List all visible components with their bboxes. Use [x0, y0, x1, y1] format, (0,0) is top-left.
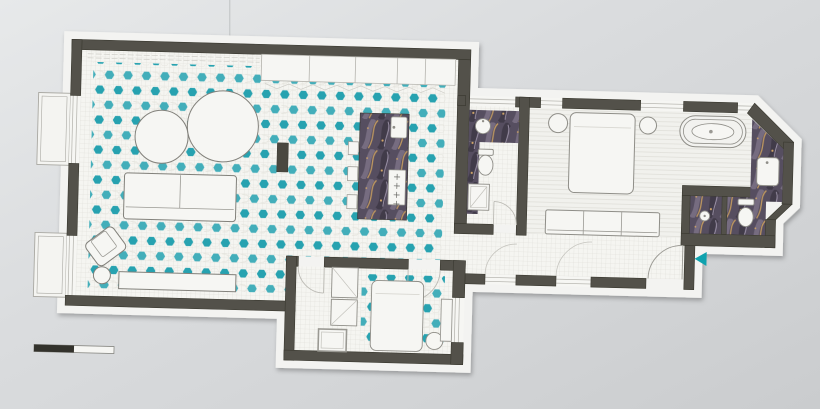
- window-second-bedroom: [451, 297, 464, 342]
- washing-machine: [468, 184, 490, 211]
- wall-east: [782, 142, 794, 204]
- wall-entrance-east: [684, 245, 695, 289]
- kitchen-sink: [391, 117, 408, 138]
- console-bench: [119, 272, 236, 292]
- scale-bar-dark-half: [34, 344, 74, 352]
- side-table: [93, 267, 110, 284]
- bar-stool: [347, 167, 357, 181]
- shower-tray: [318, 329, 347, 352]
- toilet: [737, 199, 754, 227]
- scale-bar: [34, 344, 114, 353]
- sofa: [123, 173, 236, 222]
- media-unit: [277, 143, 289, 172]
- plan-rotated-group: [32, 39, 796, 374]
- wall-guest-bath-south: [454, 223, 493, 234]
- wall-wc-divider: [721, 196, 727, 234]
- window-wing-top-2: [540, 98, 562, 109]
- window-shelf: [440, 299, 452, 341]
- photo-of-floor-plan: [0, 0, 820, 409]
- bathtub: [680, 115, 747, 148]
- wardrobe-units: [331, 267, 359, 326]
- window-wing-top-3: [640, 100, 683, 111]
- guest-toilet: [478, 149, 494, 175]
- bar-stool: [348, 142, 358, 155]
- window-left-bottom: [65, 235, 77, 295]
- cooktop: [388, 170, 406, 207]
- hall-gallery-floor: [465, 232, 685, 280]
- double-bed: [568, 112, 635, 194]
- bar-stool: [347, 195, 357, 209]
- nightstand-right: [639, 117, 656, 134]
- bench-daybed: [545, 210, 660, 237]
- round-table-small: [134, 110, 188, 164]
- window-wing-top-1: [465, 96, 515, 107]
- nightstand-left: [548, 113, 567, 132]
- floor-plan-canvas: [0, 0, 820, 409]
- window-left-top: [69, 95, 81, 163]
- single-bed: [370, 280, 424, 351]
- shower-drain-sink: [700, 211, 710, 221]
- wall-bed-headboard: [562, 98, 640, 110]
